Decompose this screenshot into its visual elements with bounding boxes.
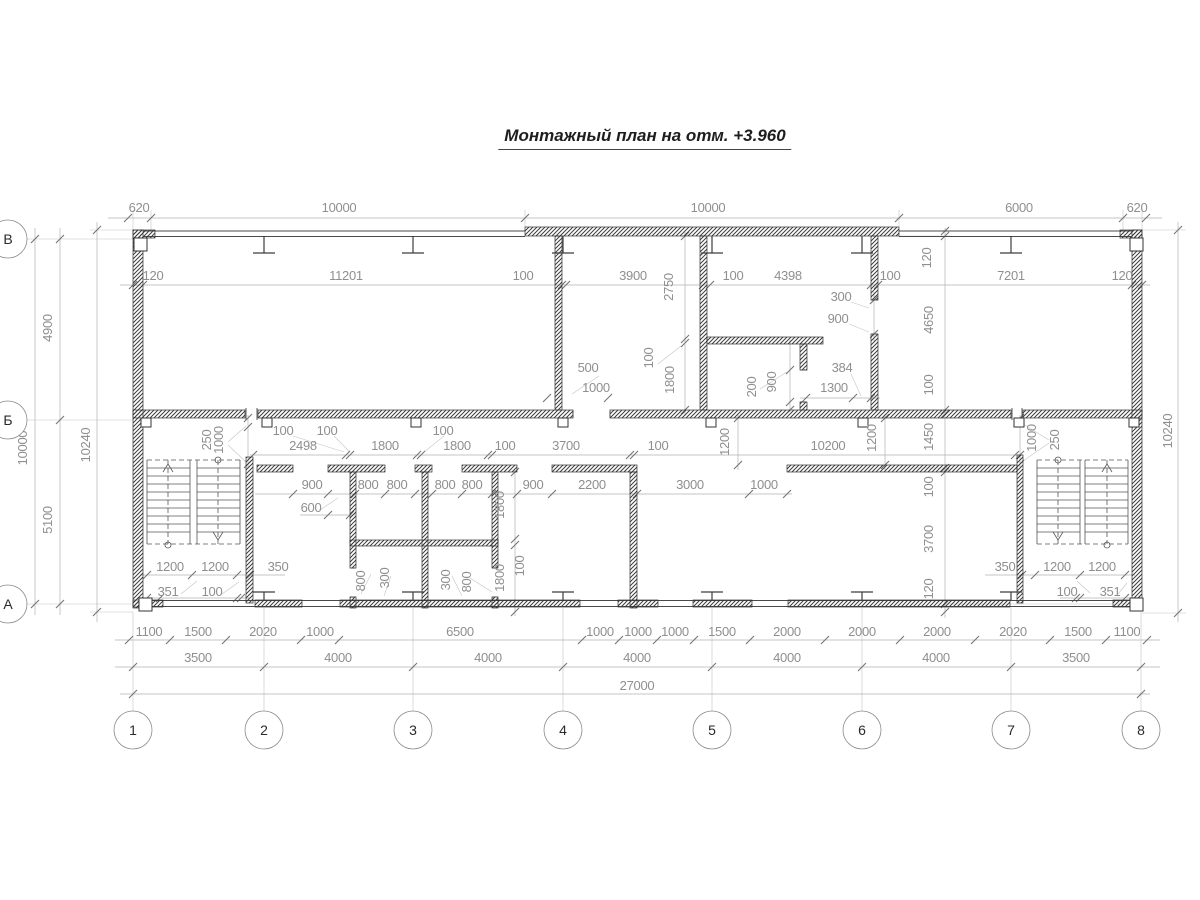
axis-marker: 2 xyxy=(245,711,283,749)
dim-label: 250 xyxy=(1047,430,1062,451)
dim-label: 900 xyxy=(523,477,544,492)
svg-text:3: 3 xyxy=(409,722,417,738)
svg-text:В: В xyxy=(3,231,12,247)
dim-label: 1200 xyxy=(717,428,732,456)
wall-column-square xyxy=(706,418,716,427)
dim-label: 100 xyxy=(317,423,338,438)
svg-text:8: 8 xyxy=(1137,722,1145,738)
dim-label: 900 xyxy=(302,477,323,492)
dim-label: 1100 xyxy=(136,624,163,639)
dim-label: 3900 xyxy=(619,268,647,283)
svg-text:7: 7 xyxy=(1007,722,1015,738)
dim-label: 3700 xyxy=(921,525,936,553)
svg-text:2: 2 xyxy=(260,722,268,738)
axis-marker: 5 xyxy=(693,711,731,749)
dim-label: 120 xyxy=(1112,268,1133,283)
dim-label: 1000 xyxy=(1024,424,1039,452)
stair-treads xyxy=(147,468,1128,532)
dim-label: 1000 xyxy=(661,624,689,639)
dim-label: 100 xyxy=(273,423,294,438)
dim-label: 2000 xyxy=(923,624,951,639)
dim-label: 3500 xyxy=(184,650,212,665)
axis-marker: 4 xyxy=(544,711,582,749)
drawing-sheet: Монтажный план на отм. +3.960 xyxy=(0,0,1200,900)
dim-label: 800 xyxy=(459,572,474,593)
dim-label: 100 xyxy=(921,375,936,396)
corner-column-square xyxy=(139,598,152,611)
dim-label: 1500 xyxy=(708,624,736,639)
dim-label: 100 xyxy=(512,556,527,577)
dim-label: 100 xyxy=(880,268,901,283)
dim-label: 7201 xyxy=(997,268,1025,283)
dim-label: 6500 xyxy=(446,624,474,639)
svg-text:Б: Б xyxy=(3,412,12,428)
axis-marker: 1 xyxy=(114,711,152,749)
dim-label: 2020 xyxy=(249,624,277,639)
dim-label: 1800 xyxy=(492,491,507,519)
svg-text:5: 5 xyxy=(708,722,716,738)
dim-label: 100 xyxy=(495,438,516,453)
dim-label: 4000 xyxy=(474,650,502,665)
dim-label: 1300 xyxy=(820,380,848,395)
dim-label: 100 xyxy=(513,268,534,283)
dim-label: 4650 xyxy=(921,306,936,334)
dim-label: 350 xyxy=(995,559,1016,574)
dim-label: 800 xyxy=(353,571,368,592)
dimension-labels-layer: 6201000010000600062012011201100390010043… xyxy=(15,200,1175,693)
floor-plan-canvas: 6201000010000600062012011201100390010043… xyxy=(0,0,1200,900)
dim-label: 300 xyxy=(438,570,453,591)
dim-label: 3000 xyxy=(676,477,704,492)
dim-label: 100 xyxy=(723,268,744,283)
dim-label: 1500 xyxy=(184,624,212,639)
dim-label: 120 xyxy=(921,579,936,600)
dim-label: 1800 xyxy=(662,366,677,394)
wall-column-square xyxy=(141,418,151,427)
dim-label: 1000 xyxy=(750,477,778,492)
dim-label: 900 xyxy=(828,311,849,326)
dim-label: 600 xyxy=(301,500,322,515)
dim-label: 300 xyxy=(831,289,852,304)
axis-marker: В xyxy=(0,220,27,258)
dim-label: 800 xyxy=(387,477,408,492)
dim-label: 1000 xyxy=(624,624,652,639)
wall-column-square xyxy=(1014,418,1024,427)
dim-label: 1800 xyxy=(443,438,471,453)
dim-label: 100 xyxy=(202,584,223,599)
dim-label: 500 xyxy=(578,360,599,375)
dim-label: 2200 xyxy=(578,477,606,492)
svg-text:А: А xyxy=(3,596,13,612)
dim-label: 800 xyxy=(435,477,456,492)
dim-label: 800 xyxy=(358,477,379,492)
dim-label: 1000 xyxy=(582,380,610,395)
dim-label: 3700 xyxy=(552,438,580,453)
dim-label: 4000 xyxy=(623,650,651,665)
dim-label: 5100 xyxy=(40,506,55,534)
dim-label: 11201 xyxy=(329,268,363,283)
dim-label: 100 xyxy=(921,477,936,498)
corner-column-square xyxy=(134,238,147,251)
corner-column-square xyxy=(1130,238,1143,251)
dim-label: 4000 xyxy=(922,650,950,665)
dim-label: 1200 xyxy=(864,424,879,452)
dim-label: 100 xyxy=(433,423,454,438)
dim-label: 1450 xyxy=(921,423,936,451)
dim-label: 1200 xyxy=(156,559,184,574)
dim-label: 900 xyxy=(764,372,779,393)
dim-label: 384 xyxy=(832,360,853,375)
dim-label: 4000 xyxy=(773,650,801,665)
svg-text:6: 6 xyxy=(858,722,866,738)
axis-marker: 7 xyxy=(992,711,1030,749)
dim-label: 2000 xyxy=(848,624,876,639)
dim-label: 6000 xyxy=(1005,200,1033,215)
dim-label: 4000 xyxy=(324,650,352,665)
dim-label: 1000 xyxy=(586,624,614,639)
dim-label: 10240 xyxy=(1160,414,1175,449)
dim-label: 1800 xyxy=(371,438,399,453)
dim-label: 10240 xyxy=(78,428,93,463)
dim-label: 2750 xyxy=(661,273,676,301)
wall-column-square xyxy=(1129,418,1139,427)
dim-label: 1100 xyxy=(1114,624,1141,639)
axis-marker: 3 xyxy=(394,711,432,749)
dim-label: 4398 xyxy=(774,268,802,283)
dim-label: 620 xyxy=(1127,200,1148,215)
dim-label: 10000 xyxy=(322,200,357,215)
dim-label: 1000 xyxy=(211,426,226,454)
axis-marker: 8 xyxy=(1122,711,1160,749)
dim-label: 620 xyxy=(129,200,150,215)
dim-label: 120 xyxy=(143,268,164,283)
dim-label: 120 xyxy=(919,248,934,269)
dim-label: 3500 xyxy=(1062,650,1090,665)
dim-label: 2000 xyxy=(773,624,801,639)
dim-label: 27000 xyxy=(620,678,655,693)
svg-text:1: 1 xyxy=(129,722,137,738)
dim-label: 1200 xyxy=(1043,559,1071,574)
dim-label: 200 xyxy=(744,377,759,398)
dim-label: 2498 xyxy=(289,438,317,453)
walls-layer xyxy=(133,227,1143,611)
dim-label: 1000 xyxy=(306,624,334,639)
dim-label: 10000 xyxy=(691,200,726,215)
dim-label: 300 xyxy=(377,568,392,589)
dim-label: 351 xyxy=(158,584,179,599)
dim-label: 1200 xyxy=(201,559,229,574)
dim-label: 4900 xyxy=(40,314,55,342)
axis-marker: А xyxy=(0,585,27,623)
dim-label: 100 xyxy=(1057,584,1078,599)
dim-label: 800 xyxy=(462,477,483,492)
axis-marker: 6 xyxy=(843,711,881,749)
dim-label: 10200 xyxy=(811,438,846,453)
dim-label: 2020 xyxy=(999,624,1027,639)
svg-text:4: 4 xyxy=(559,722,567,738)
dim-label: 100 xyxy=(648,438,669,453)
dim-label: 1800 xyxy=(492,564,507,592)
dim-label: 1500 xyxy=(1064,624,1092,639)
corner-column-square xyxy=(1130,598,1143,611)
dim-label: 100 xyxy=(641,348,656,369)
wall-column-square xyxy=(558,418,568,427)
wall-column-square xyxy=(411,418,421,427)
dim-label: 1200 xyxy=(1088,559,1116,574)
dim-label: 351 xyxy=(1100,584,1121,599)
dim-label: 350 xyxy=(268,559,289,574)
wall-column-square xyxy=(262,418,272,427)
